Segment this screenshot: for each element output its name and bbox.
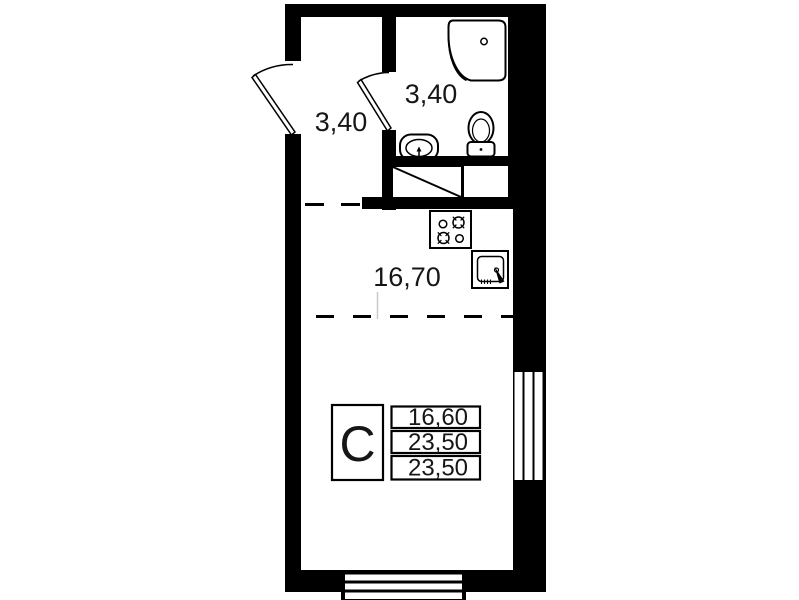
hallway-area-label: 3,40 [315, 107, 368, 137]
window-right-pane-1 [515, 372, 523, 480]
summary-value-total: 23,50 [408, 429, 468, 456]
page-background [0, 0, 799, 600]
summary-value-total-with-balcony: 23,50 [408, 455, 468, 482]
window-bottom [345, 575, 462, 600]
shower-tray-icon [448, 21, 505, 81]
wall-service-stub [362, 197, 384, 209]
window-right-pane-2 [525, 372, 533, 480]
summary-table: С 16,60 23,50 23,50 [332, 404, 480, 482]
stove-burner-small-1 [439, 220, 447, 228]
wall-bath-divider-upper [382, 17, 396, 72]
bathroom-area-label: 3,40 [405, 79, 458, 109]
window-bottom-pane-2 [345, 584, 462, 590]
wardrobe-right-box [464, 166, 508, 197]
floor-plan-drawing: 3,40 3,40 16,70 С 16,60 23,50 23,50 [0, 0, 799, 600]
wall-right [513, 17, 546, 592]
unit-type-letter: С [339, 416, 375, 472]
window-right [515, 372, 543, 480]
toilet-button [480, 148, 483, 151]
wall-left-lower [285, 134, 301, 592]
window-right-pane-3 [535, 372, 543, 480]
wall-bathroom-bottom [382, 156, 513, 167]
kitchen-sink-icon [472, 251, 508, 288]
stove-outline [430, 211, 471, 248]
shower-drain [481, 38, 487, 44]
stove-burner-small-2 [456, 235, 464, 243]
stove-icon [430, 211, 471, 248]
wall-left-upper [285, 17, 301, 61]
wall-right-bathroom-strip [508, 17, 514, 157]
wall-top [285, 4, 546, 17]
summary-value-living: 16,60 [408, 404, 468, 431]
window-bottom-pane-3 [345, 593, 462, 600]
window-bottom-pane-1 [345, 575, 462, 581]
toilet-icon [468, 112, 495, 157]
living-kitchen-area-label: 16,70 [373, 262, 441, 292]
floor-plan-page: 3,40 3,40 16,70 С 16,60 23,50 23,50 [0, 0, 799, 600]
wardrobe-icon [393, 166, 508, 197]
